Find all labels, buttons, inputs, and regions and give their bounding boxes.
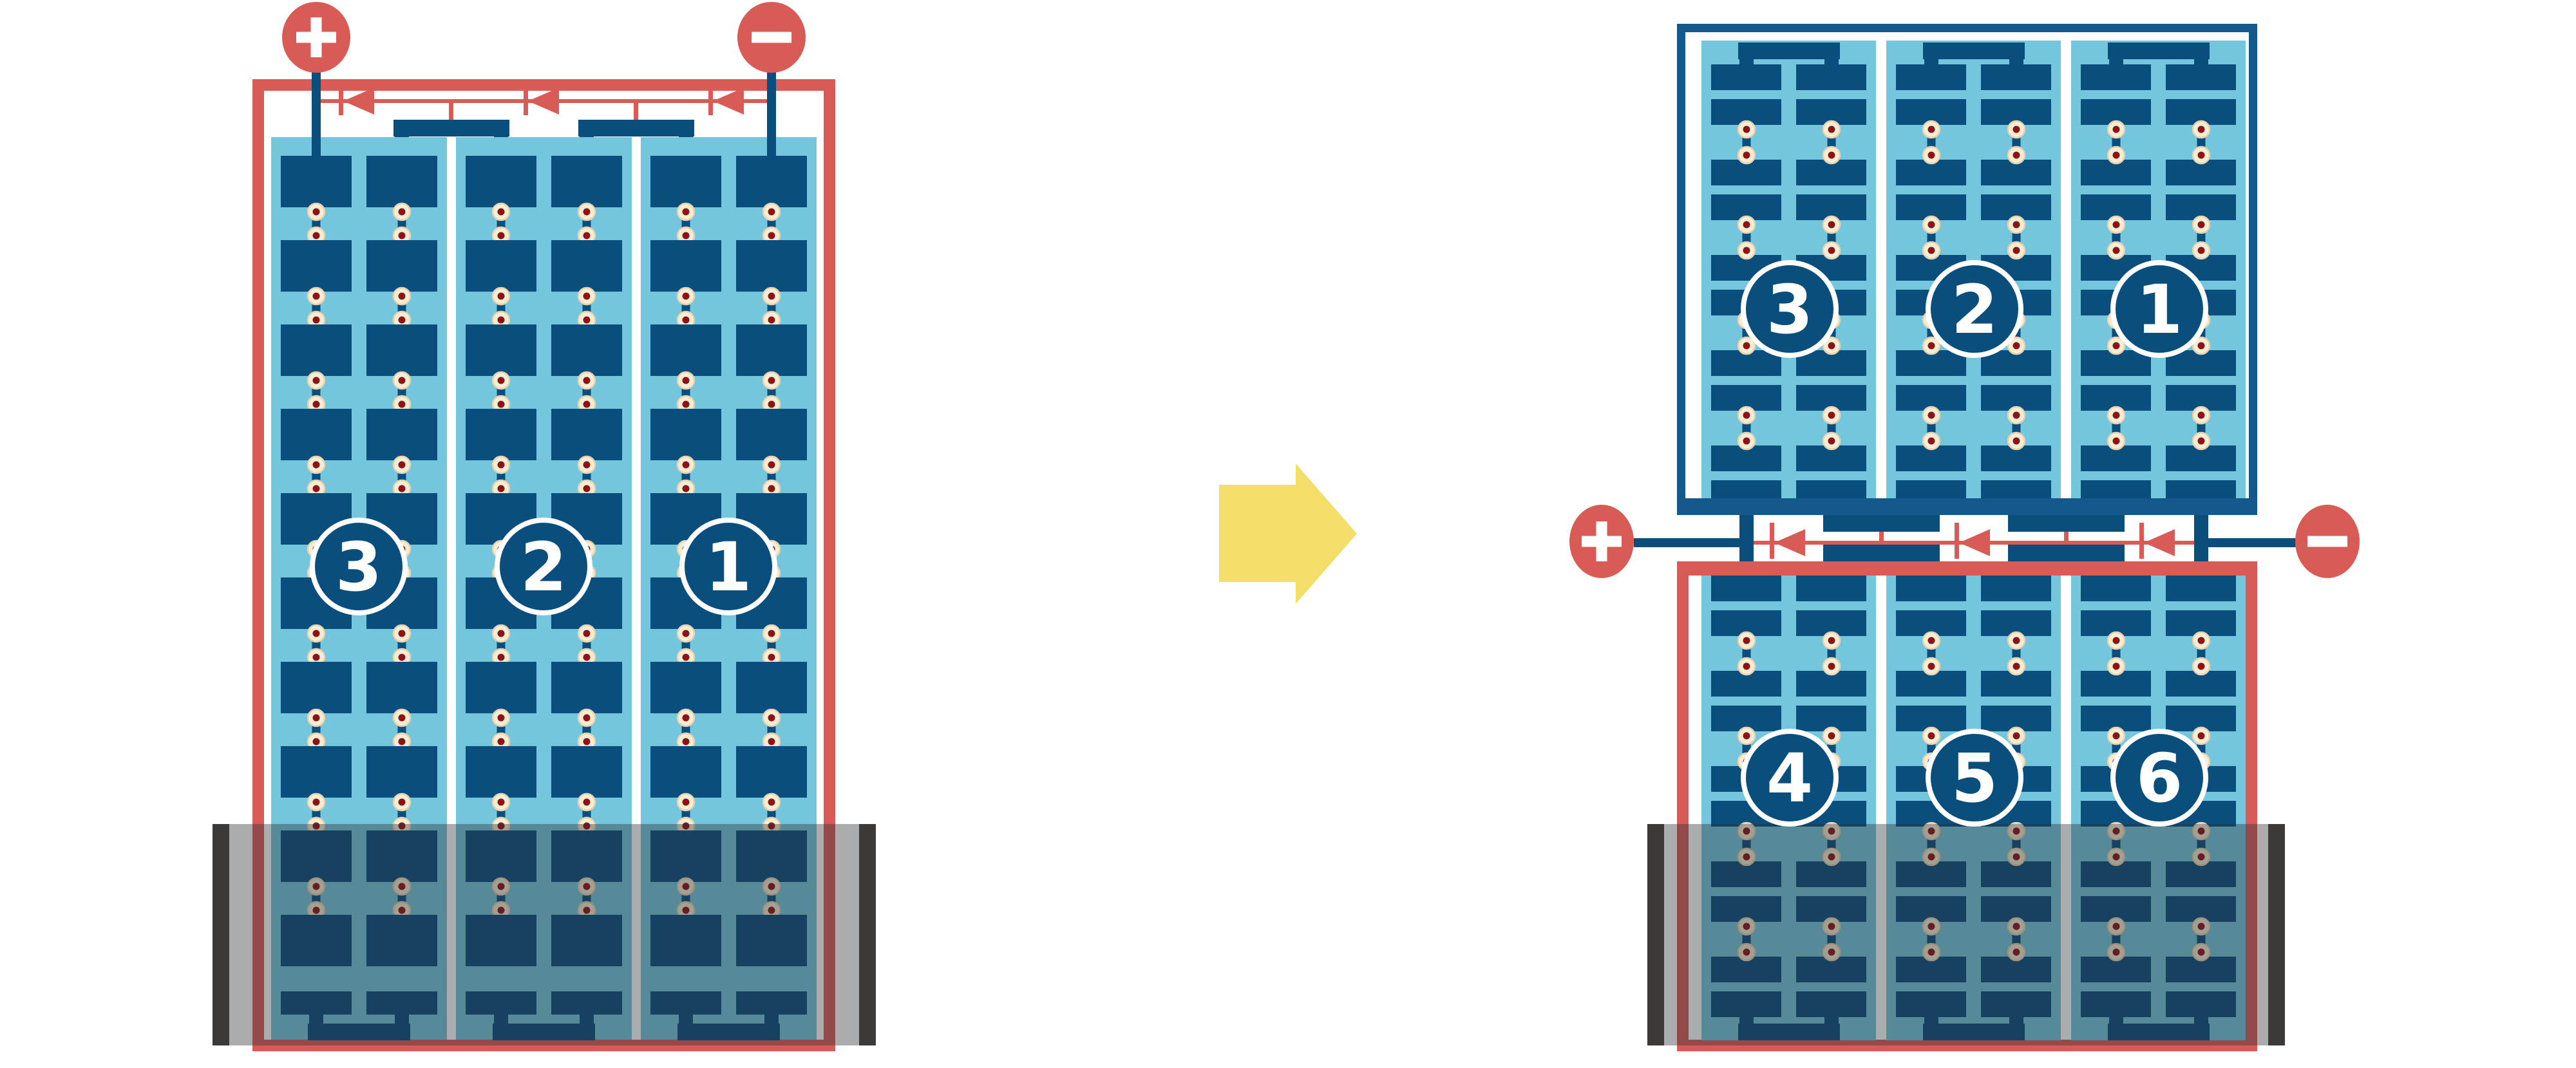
terminal-wire-negative <box>767 70 776 156</box>
solder-dot-core <box>1828 247 1835 254</box>
solder-dot-core <box>2113 342 2120 350</box>
solder-dot-core <box>583 485 591 492</box>
terminal-wire-negative <box>2204 538 2297 547</box>
solder-dot-core <box>498 401 505 408</box>
solder-dot-core <box>498 630 505 637</box>
solder-dot-core <box>2013 733 2020 740</box>
pv-cell <box>281 324 352 376</box>
string-return-jumper-leg <box>2109 59 2123 64</box>
string-number-badge: 1 <box>2113 263 2206 355</box>
solder-dot-core <box>583 209 591 216</box>
pv-cell <box>466 746 536 798</box>
string-number-label: 2 <box>1951 270 1998 349</box>
solder-dot-core <box>399 630 406 637</box>
solder-dot-core <box>313 232 320 239</box>
string-interconnect-bar <box>578 120 694 136</box>
solder-dot-core <box>683 317 690 324</box>
string-number-badge: 3 <box>312 520 405 613</box>
solder-dot-core <box>399 377 406 384</box>
pv-cell <box>281 746 352 798</box>
solder-dot-core <box>498 317 505 324</box>
solder-dot-core <box>1828 152 1835 159</box>
terminal-wire-positive <box>1634 538 1743 547</box>
solder-dot-core <box>1828 733 1835 740</box>
solder-dot-core <box>2113 126 2120 133</box>
flood-water-left-edge <box>1647 824 1664 1045</box>
pv-cell <box>2166 480 2236 498</box>
solder-dot-core <box>583 232 591 239</box>
flood-water-right-edge <box>2268 824 2285 1045</box>
solder-dot-core <box>1743 152 1750 159</box>
solder-dot-core <box>2113 733 2120 740</box>
pv-cell <box>366 156 437 207</box>
diode-cathode-bar <box>708 87 713 115</box>
solder-dot-core <box>2198 247 2205 254</box>
pv-cell <box>650 156 721 207</box>
solder-dot-core <box>498 462 505 469</box>
pv-cell <box>2166 64 2236 90</box>
string-number-label: 1 <box>2136 270 2183 349</box>
pv-cell <box>1796 64 1866 90</box>
solder-dot-core <box>1743 733 1750 740</box>
solder-dot-core <box>399 317 406 324</box>
solder-dot-core <box>399 654 406 661</box>
solder-dot-core <box>2113 637 2120 644</box>
solder-dot-core <box>1743 412 1750 419</box>
string-return-jumper-bar <box>1923 42 2025 59</box>
solder-dot-core <box>498 209 505 216</box>
string-interconnect-tab <box>2008 545 2125 561</box>
string-interconnect-bar <box>393 120 509 136</box>
solder-dot-core <box>313 799 320 806</box>
solder-dot-core <box>2013 152 2020 159</box>
flood-water-right-edge <box>859 824 876 1045</box>
solder-dot-core <box>583 654 591 661</box>
diode-arrowhead-left <box>713 88 744 115</box>
solder-dot-core <box>1743 126 1750 133</box>
solder-dot-core <box>683 485 690 492</box>
solder-dot-core <box>683 377 690 384</box>
bypass-diode <box>708 87 744 115</box>
solder-dot-core <box>313 209 320 216</box>
figure-stage: +−321321+−456 <box>0 0 2576 1068</box>
string-number-badge: 5 <box>1928 731 2021 824</box>
left-module: +−321 <box>213 2 876 1051</box>
pv-cell <box>1711 576 1781 601</box>
solder-dot-core <box>583 462 591 469</box>
solder-dot-core <box>2013 438 2020 445</box>
string-number-badge: 6 <box>2113 731 2206 824</box>
solder-dot-core <box>683 799 690 806</box>
solder-dot-core <box>1928 438 1935 445</box>
solder-dot-core <box>1928 342 1935 350</box>
solder-dot-core <box>683 738 690 745</box>
string-return-jumper-leg <box>2194 59 2208 64</box>
solder-dot-core <box>1928 412 1935 419</box>
solder-dot-core <box>683 462 690 469</box>
diode-cathode-bar <box>1770 523 1774 559</box>
solder-dot-core <box>583 799 591 806</box>
solder-dot-core <box>2198 663 2205 670</box>
solder-dot-core <box>1743 637 1750 644</box>
solder-dot-core <box>683 232 690 239</box>
negative-terminal: − <box>737 2 806 73</box>
pv-cell <box>2166 576 2236 601</box>
terminal-wire-positive <box>312 70 321 156</box>
pv-cell <box>466 240 536 292</box>
solder-dot-core <box>1828 663 1835 670</box>
string-number-badge: 2 <box>1928 263 2021 355</box>
solder-dot-core <box>768 317 775 324</box>
solder-dot-core <box>399 293 406 300</box>
pv-cell <box>1796 480 1866 498</box>
solder-dot-core <box>1828 342 1835 350</box>
solder-dot-core <box>768 377 775 384</box>
solder-dot-core <box>2013 663 2020 670</box>
pv-cell <box>466 156 536 207</box>
pv-cell <box>650 324 721 376</box>
pv-cell <box>1711 480 1781 498</box>
solder-dot-core <box>683 654 690 661</box>
pv-cell <box>466 662 536 713</box>
diode-arrowhead-left <box>2144 529 2175 556</box>
solder-dot-core <box>498 377 505 384</box>
pv-cell <box>281 662 352 713</box>
diode-arrowhead-left <box>343 88 374 115</box>
string-return-jumper-leg <box>2009 59 2023 64</box>
transform-arrow <box>1219 464 1357 604</box>
solder-dot-core <box>498 485 505 492</box>
solder-dot-core <box>1928 247 1935 254</box>
solder-dot-core <box>1828 221 1835 229</box>
solder-dot-core <box>2013 637 2020 644</box>
pv-cell <box>736 156 807 207</box>
diode-arrowhead-left <box>1959 529 1990 556</box>
pv-cell <box>466 324 536 376</box>
solder-dot-core <box>498 715 505 722</box>
solder-dot-core <box>498 232 505 239</box>
solder-dot-core <box>2198 412 2205 419</box>
pv-cell <box>1981 480 2051 498</box>
frame-bottom-bus <box>1677 498 2257 515</box>
pv-cell <box>551 662 622 713</box>
solder-dot-core <box>313 293 320 300</box>
solder-dot-core <box>2198 126 2205 133</box>
solder-dot-core <box>583 630 591 637</box>
solder-dot-core <box>2198 733 2205 740</box>
solder-dot-core <box>683 630 690 637</box>
pv-cell <box>366 240 437 292</box>
string-number-label: 6 <box>2136 739 2183 818</box>
minus-icon <box>752 32 791 43</box>
plus-icon <box>311 17 322 57</box>
pv-cell <box>551 156 622 207</box>
solder-dot-core <box>399 799 406 806</box>
pv-cell <box>1896 64 1966 90</box>
solder-dot-core <box>1928 152 1935 159</box>
solder-dot-core <box>2113 152 2120 159</box>
solder-dot-core <box>768 799 775 806</box>
pv-cell <box>366 662 437 713</box>
string-number-badge: 3 <box>1743 263 1836 355</box>
right-modules: 321+−456 <box>1569 24 2360 1051</box>
pv-cell <box>2081 64 2151 90</box>
solder-dot-core <box>1743 663 1750 670</box>
pv-cell <box>736 240 807 292</box>
frame-top-bus <box>1677 561 2257 576</box>
current-direction-line <box>1747 516 2201 560</box>
solder-dot-core <box>1828 637 1835 644</box>
solder-dot-core <box>2113 663 2120 670</box>
pv-cell <box>281 240 352 292</box>
solder-dot-core <box>2198 637 2205 644</box>
string-number-label: 1 <box>705 528 752 606</box>
pv-cell <box>1981 64 2051 90</box>
solder-dot-core <box>1928 663 1935 670</box>
pv-cell <box>1896 576 1966 601</box>
pv-cell <box>1981 576 2051 601</box>
string-number-label: 3 <box>1766 270 1813 349</box>
plus-icon <box>1596 521 1607 561</box>
frame-top <box>1677 24 2257 32</box>
solder-dot-core <box>768 630 775 637</box>
solder-dot-core <box>498 799 505 806</box>
pv-cell <box>736 746 807 798</box>
solder-dot-core <box>683 715 690 722</box>
solder-dot-core <box>583 738 591 745</box>
solder-dot-core <box>2013 221 2020 229</box>
negative-terminal: − <box>2295 505 2360 578</box>
diode-cathode-bar <box>1955 523 1959 559</box>
pv-cell <box>650 409 721 460</box>
string-interconnect-tab <box>1823 515 1940 532</box>
pv-cell <box>736 409 807 460</box>
solder-dot-core <box>2113 221 2120 229</box>
string-number-label: 2 <box>520 528 567 606</box>
pv-cell <box>1796 576 1866 601</box>
solder-dot-core <box>683 209 690 216</box>
solder-dot-core <box>768 654 775 661</box>
string-return-jumper-leg <box>1739 59 1754 64</box>
pv-cell <box>736 324 807 376</box>
solder-dot-core <box>768 462 775 469</box>
current-direction-line <box>316 87 772 124</box>
solder-dot-core <box>399 738 406 745</box>
diode-cathode-bar <box>2139 523 2144 559</box>
pv-cell <box>551 409 622 460</box>
solder-dot-core <box>768 715 775 722</box>
pv-cell <box>2081 576 2151 601</box>
pv-cell <box>366 324 437 376</box>
string-interconnect-tab <box>2008 515 2125 532</box>
string-number-badge: 4 <box>1743 731 1836 824</box>
string-number-badge: 2 <box>497 520 590 613</box>
solder-dot-core <box>2198 221 2205 229</box>
diode-cathode-bar <box>524 87 528 115</box>
pv-cell <box>551 324 622 376</box>
positive-terminal: + <box>282 2 350 73</box>
solder-dot-core <box>583 293 591 300</box>
solder-dot-core <box>1928 126 1935 133</box>
solder-dot-core <box>583 317 591 324</box>
solder-dot-core <box>768 485 775 492</box>
flood-water <box>1647 824 2285 1045</box>
solder-dot-core <box>313 715 320 722</box>
pv-cell <box>366 746 437 798</box>
solder-dot-core <box>313 738 320 745</box>
flood-water-overlay <box>213 824 876 1045</box>
solder-dot-core <box>2013 247 2020 254</box>
flood-water <box>213 824 876 1045</box>
string-number-label: 3 <box>336 528 382 606</box>
solder-dot-core <box>399 462 406 469</box>
solder-dot-core <box>768 293 775 300</box>
pv-cell <box>466 409 536 460</box>
bypass-diode <box>524 87 559 115</box>
flood-water-overlay <box>1647 824 2285 1045</box>
solder-dot-core <box>583 715 591 722</box>
pv-cell <box>551 746 622 798</box>
pv-cell <box>650 662 721 713</box>
pv-cell <box>1711 64 1781 90</box>
solder-dot-core <box>1828 438 1835 445</box>
solder-dot-core <box>399 232 406 239</box>
solder-dot-core <box>768 232 775 239</box>
solder-dot-core <box>768 401 775 408</box>
pv-cell <box>366 409 437 460</box>
solder-dot-core <box>399 485 406 492</box>
solder-dot-core <box>2198 342 2205 350</box>
right-block-arrow <box>1219 464 1357 604</box>
solder-dot-core <box>498 738 505 745</box>
diode-arrowhead-left <box>528 88 559 115</box>
pv-cell <box>281 156 352 207</box>
minus-icon <box>2307 536 2347 547</box>
solder-dot-core <box>2013 342 2020 350</box>
string-number-label: 4 <box>1766 739 1813 818</box>
solder-dot-core <box>2113 412 2120 419</box>
solder-dot-core <box>313 485 320 492</box>
pv-cell <box>551 240 622 292</box>
solder-dot-core <box>399 401 406 408</box>
frame-left <box>1677 24 1685 515</box>
solder-dot-core <box>399 715 406 722</box>
solder-dot-core <box>1928 221 1935 229</box>
pv-cell <box>281 409 352 460</box>
solder-dot-core <box>313 401 320 408</box>
solder-dot-core <box>1743 221 1750 229</box>
diagram-canvas: +−321321+−456 <box>0 0 2576 1068</box>
solder-dot-core <box>583 401 591 408</box>
flood-water-left-edge <box>213 824 229 1045</box>
solder-dot-core <box>498 293 505 300</box>
solder-dot-core <box>1828 126 1835 133</box>
solder-dot-core <box>1928 637 1935 644</box>
pv-cell <box>736 662 807 713</box>
solder-dot-core <box>313 630 320 637</box>
string-return-jumper-bar <box>1738 42 1840 59</box>
solder-dot-core <box>313 462 320 469</box>
positive-terminal: + <box>1569 505 1634 578</box>
string-number-label: 5 <box>1951 739 1998 818</box>
solder-dot-core <box>583 377 591 384</box>
solder-dot-core <box>2013 126 2020 133</box>
diode-cathode-bar <box>339 87 343 115</box>
solder-dot-core <box>683 401 690 408</box>
solder-dot-core <box>1743 342 1750 350</box>
solder-dot-core <box>768 209 775 216</box>
solder-dot-core <box>498 654 505 661</box>
string-return-jumper-leg <box>1824 59 1839 64</box>
solder-dot-core <box>313 317 320 324</box>
solder-dot-core <box>313 377 320 384</box>
diode-arrowhead-left <box>1774 529 1805 556</box>
solder-dot-core <box>2013 412 2020 419</box>
bypass-diode <box>339 87 374 115</box>
pv-cell <box>650 746 721 798</box>
pv-cell <box>1896 480 1966 498</box>
solder-dot-core <box>2198 152 2205 159</box>
string-interconnect-tab <box>1823 545 1940 561</box>
string-return-jumper-bar <box>2108 42 2210 59</box>
pv-cell <box>2081 480 2151 498</box>
solder-dot-core <box>683 293 690 300</box>
solder-dot-core <box>313 654 320 661</box>
solder-dot-core <box>2113 438 2120 445</box>
pv-cell <box>650 240 721 292</box>
string-number-badge: 1 <box>682 520 775 613</box>
solder-dot-core <box>1743 438 1750 445</box>
solder-dot-core <box>1928 733 1935 740</box>
frame-right <box>2249 24 2257 515</box>
solder-dot-core <box>2198 438 2205 445</box>
solder-dot-core <box>2113 247 2120 254</box>
solder-dot-core <box>1743 247 1750 254</box>
solder-dot-core <box>1828 412 1835 419</box>
solder-dot-core <box>768 738 775 745</box>
solder-dot-core <box>399 209 406 216</box>
string-return-jumper-leg <box>1924 59 1938 64</box>
